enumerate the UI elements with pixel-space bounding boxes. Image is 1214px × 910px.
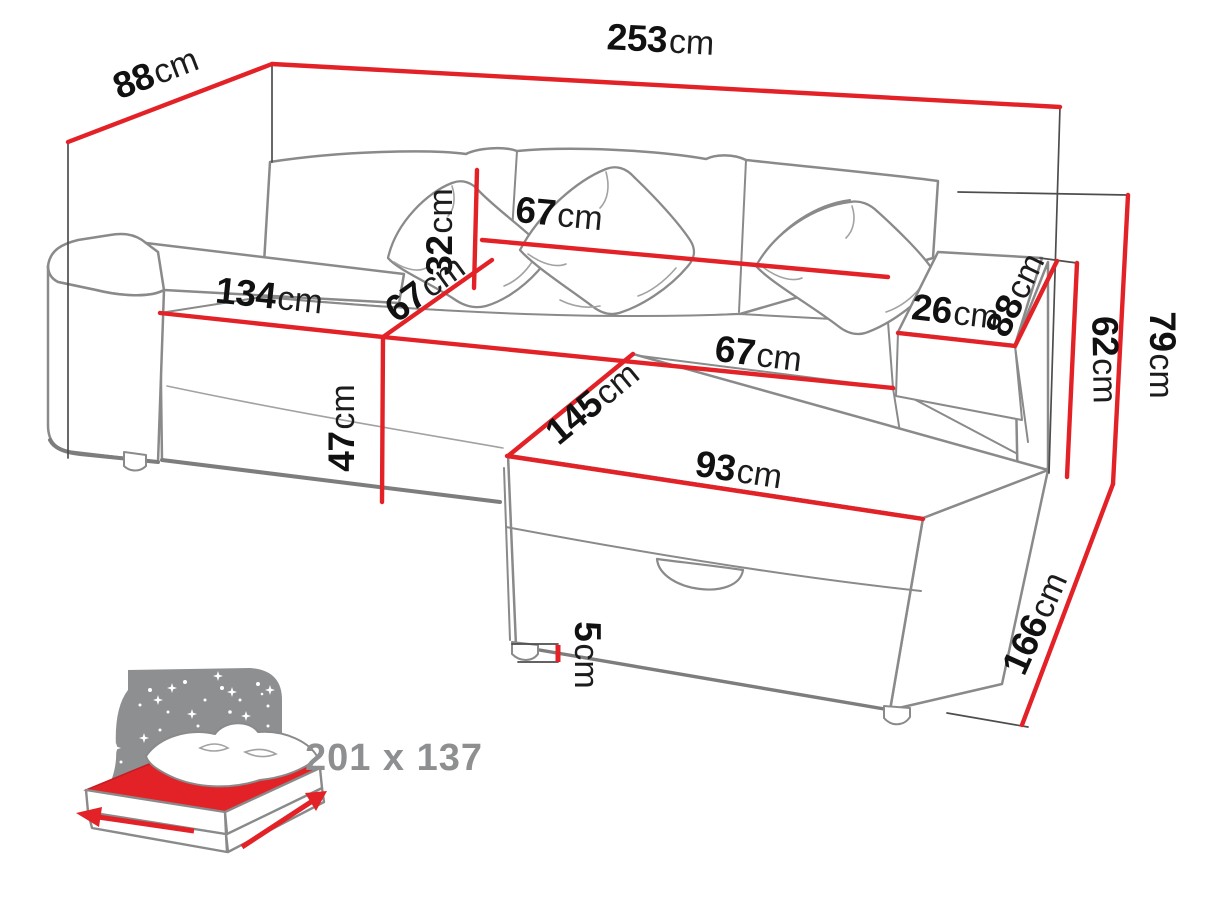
dim-armrest-height-line xyxy=(1067,263,1077,477)
dim-leg-height-label: 5cm xyxy=(567,621,608,688)
bed-icon xyxy=(76,723,327,852)
sleeping-area-label: 201 x 137 xyxy=(305,737,483,779)
dim-backrest-height-line xyxy=(474,170,477,288)
dim-total-height-label: 79cm xyxy=(1142,311,1183,398)
left-armrest-foot xyxy=(124,452,146,471)
sleeping-area-icon: 201 x 137 xyxy=(76,668,483,852)
chaise-foot-right xyxy=(884,706,910,724)
diagram-canvas: 253cm 88cm 67cm 32cm 134cm 67cm 67cm 26c… xyxy=(0,0,1214,910)
dim-armrest-height-label: 62cm xyxy=(1084,316,1127,404)
sofa-dimension-diagram: 253cm 88cm 67cm 32cm 134cm 67cm 67cm 26c… xyxy=(0,0,1214,910)
dim-total-width-label: 253cm xyxy=(606,16,716,63)
dim-seat-front-height-label: 47cm xyxy=(321,384,362,471)
dim-seat-front-height-line xyxy=(382,337,383,502)
sofa-drawing xyxy=(48,148,1048,724)
dim-total-width-line xyxy=(272,64,1060,107)
